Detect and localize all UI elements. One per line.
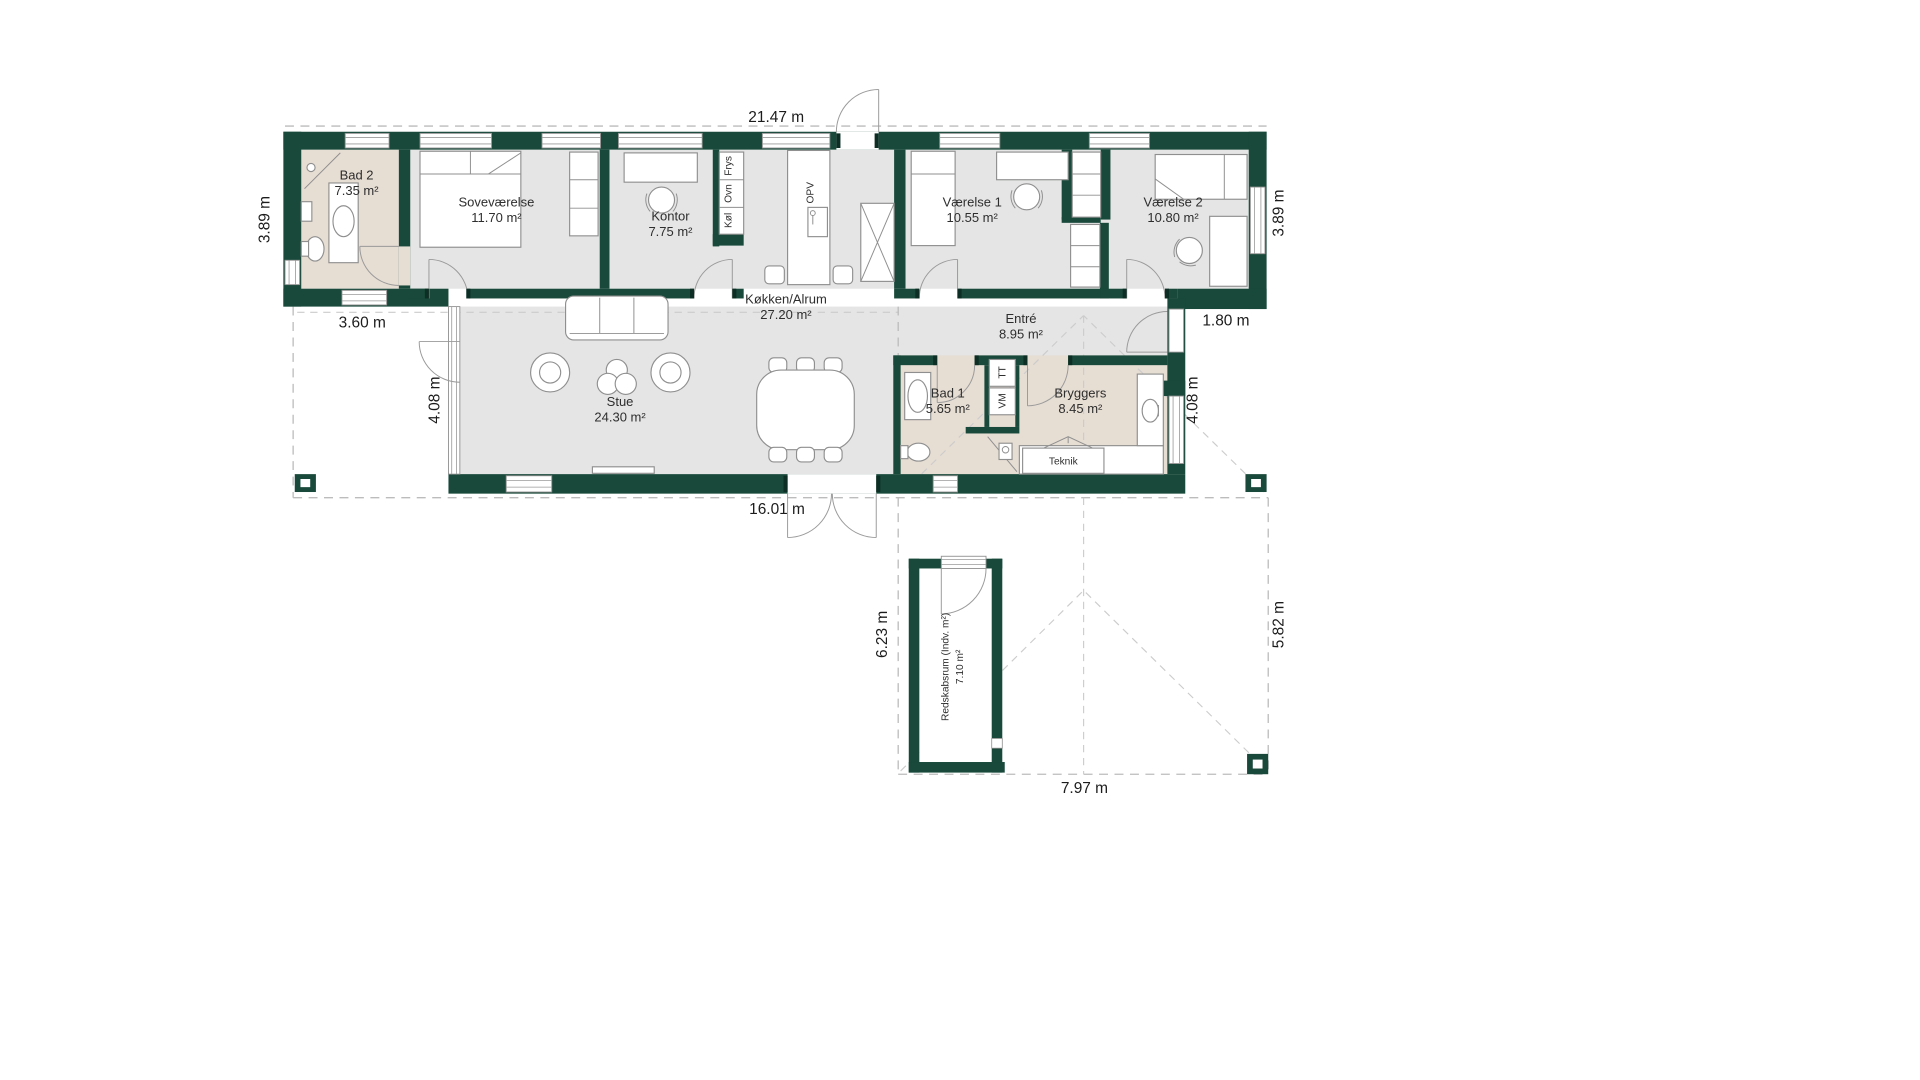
label-vaerelse2-area: 10.80 m² xyxy=(1147,210,1199,225)
dim-left-upper: 3.89 m xyxy=(257,196,274,243)
label-teknik: Teknik xyxy=(1049,456,1079,467)
post-carport xyxy=(1247,754,1268,774)
wall-bad1-ttvm xyxy=(984,365,989,427)
label-entre-area: 8.95 m² xyxy=(999,326,1044,341)
shed-vent xyxy=(992,738,1003,748)
label-tt: TT xyxy=(998,366,1009,378)
wall-koekken-vaerelse1 xyxy=(894,150,905,289)
label-stue-area: 24.30 m² xyxy=(594,409,646,424)
dim-left-lower: 4.08 m xyxy=(427,377,444,424)
wardrobe-upper xyxy=(1072,152,1100,217)
dim-left-section: 3.60 m xyxy=(339,315,386,332)
label-vm: VM xyxy=(998,393,1009,408)
window-top-4 xyxy=(618,133,702,148)
window-right-wall xyxy=(1250,187,1265,254)
label-bryggers-name: Bryggers xyxy=(1054,386,1107,401)
label-redskabsrum-area: 7.10 m² xyxy=(955,649,966,684)
shed-wall-bottom xyxy=(909,762,1005,773)
floor-plan-drawing: Bad 2 7.35 m² Soveværelse 11.70 m² Konto… xyxy=(0,0,1920,1080)
post-terrace-right xyxy=(1245,474,1266,492)
window-left-wall xyxy=(285,260,300,284)
label-frys: Frys xyxy=(723,156,734,176)
dining-set xyxy=(757,358,855,462)
label-stue-name: Stue xyxy=(607,394,634,409)
wall-wardrobe-lower xyxy=(1100,223,1109,299)
dim-carport-left: 6.23 m xyxy=(874,611,891,658)
label-ovn: Ovn xyxy=(723,184,734,203)
wall-sove-kontor xyxy=(600,150,610,289)
label-vaerelse2-name: Værelse 2 xyxy=(1143,195,1202,210)
label-vaerelse1-area: 10.55 m² xyxy=(947,210,999,225)
label-redskabsrum-name: Redskabsrum (Indv. m²) xyxy=(941,613,952,721)
wall-under-vaerelse2 xyxy=(1177,289,1266,309)
window-top-5 xyxy=(762,133,830,148)
label-bad2-name: Bad 2 xyxy=(340,168,374,183)
dim-right-upper: 3.89 m xyxy=(1271,189,1288,236)
bar-stool-1 xyxy=(765,266,785,284)
label-koel: Køl xyxy=(723,213,734,228)
window-top-1 xyxy=(345,133,389,148)
sideboard xyxy=(592,467,654,474)
label-sove-name: Soveværelse xyxy=(459,195,535,210)
label-vaerelse1-name: Værelse 1 xyxy=(943,195,1002,210)
label-opv: OPV xyxy=(806,182,817,204)
label-koekken-name: Køkken/Alrum xyxy=(745,291,827,306)
label-bad1-name: Bad 1 xyxy=(931,386,965,401)
window-top-2 xyxy=(420,133,492,148)
wall-appliance-stub xyxy=(713,234,744,245)
dim-top: 21.47 m xyxy=(748,109,804,126)
shed-wall-left xyxy=(909,559,920,773)
label-sove-area: 11.70 m² xyxy=(471,210,522,225)
dim-right-section: 1.80 m xyxy=(1202,312,1249,329)
sove-wardrobe xyxy=(570,152,598,236)
label-bad1-area: 5.65 m² xyxy=(926,401,971,416)
window-stue-south xyxy=(506,476,552,492)
window-bad2-south xyxy=(342,290,387,305)
wall-bad1-left xyxy=(893,355,900,474)
wall-vaerelse2-left xyxy=(1101,150,1111,220)
post-terrace-left xyxy=(295,474,316,492)
dim-carport-bottom: 7.97 m xyxy=(1061,780,1108,797)
wall-kontor-koekken xyxy=(713,150,720,247)
dim-bottom: 16.01 m xyxy=(749,501,805,518)
dim-carport-right: 5.82 m xyxy=(1271,601,1288,648)
wall-bryggers-stub xyxy=(1163,381,1185,396)
label-entre-name: Entré xyxy=(1005,311,1036,326)
floor-plan-page: Bad 2 7.35 m² Soveværelse 11.70 m² Konto… xyxy=(0,0,1920,1080)
kitchen-tall-cabinet xyxy=(861,203,894,281)
glass-wall-stue-west xyxy=(448,307,459,475)
label-bad2-area: 7.35 m² xyxy=(335,183,380,198)
window-bad1-south xyxy=(933,476,957,492)
window-lower-right xyxy=(1169,396,1184,464)
bar-stool-2 xyxy=(833,266,853,284)
wall-band-5 xyxy=(958,289,1101,299)
window-top-3 xyxy=(542,133,601,148)
wardrobe-lower xyxy=(1071,224,1100,287)
label-koekken-area: 27.20 m² xyxy=(760,307,812,322)
label-kontor-name: Kontor xyxy=(651,208,690,223)
wall-shower-stub xyxy=(966,427,1020,434)
label-bryggers-area: 8.45 m² xyxy=(1058,401,1103,416)
label-kontor-area: 7.75 m² xyxy=(648,224,693,239)
wall-ttvm-bryggers xyxy=(1015,365,1019,427)
window-top-7 xyxy=(1089,133,1149,148)
dim-right-lower: 4.08 m xyxy=(1184,377,1201,424)
window-top-6 xyxy=(940,133,1000,148)
wall-entre-band-3 xyxy=(1068,355,1167,365)
wall-wardrobe-divider xyxy=(1062,217,1101,223)
